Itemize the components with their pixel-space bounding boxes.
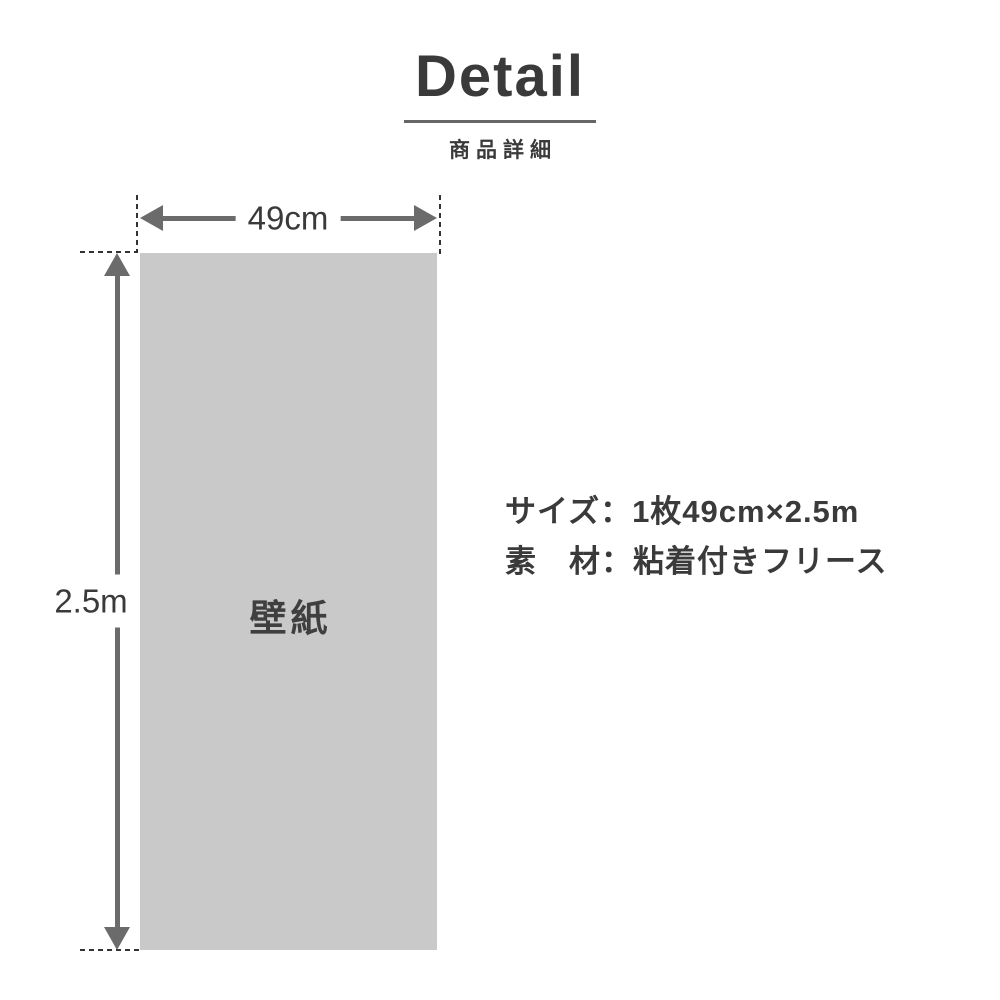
- wallpaper-rectangle: 壁紙: [140, 253, 437, 950]
- section-subtitle: 商品詳細: [0, 134, 1000, 164]
- section-header: Detail 商品詳細: [0, 48, 1000, 164]
- title-divider: [404, 120, 596, 123]
- height-dimension-label: 2.5m: [49, 575, 132, 628]
- height-arrow-up-icon: [104, 253, 130, 276]
- dashed-guide-right-vertical: [439, 195, 441, 255]
- spec-size-line: サイズ：1枚49cm×2.5m: [505, 487, 887, 537]
- section-title: Detail: [0, 48, 1000, 106]
- width-arrow-left-icon: [140, 205, 163, 231]
- product-detail-section: Detail 商品詳細 壁紙 49cm 2.5m サイズ：1枚49cm×2.5m…: [0, 0, 1000, 1000]
- height-arrow-down-icon: [104, 927, 130, 950]
- spec-material-line: 素 材：粘着付きフリース: [505, 537, 887, 587]
- spec-text-block: サイズ：1枚49cm×2.5m 素 材：粘着付きフリース: [505, 487, 887, 587]
- wallpaper-label: 壁紙: [246, 588, 332, 642]
- dashed-guide-left-vertical: [136, 195, 138, 253]
- width-arrow-right-icon: [414, 205, 437, 231]
- width-dimension-label: 49cm: [236, 198, 341, 239]
